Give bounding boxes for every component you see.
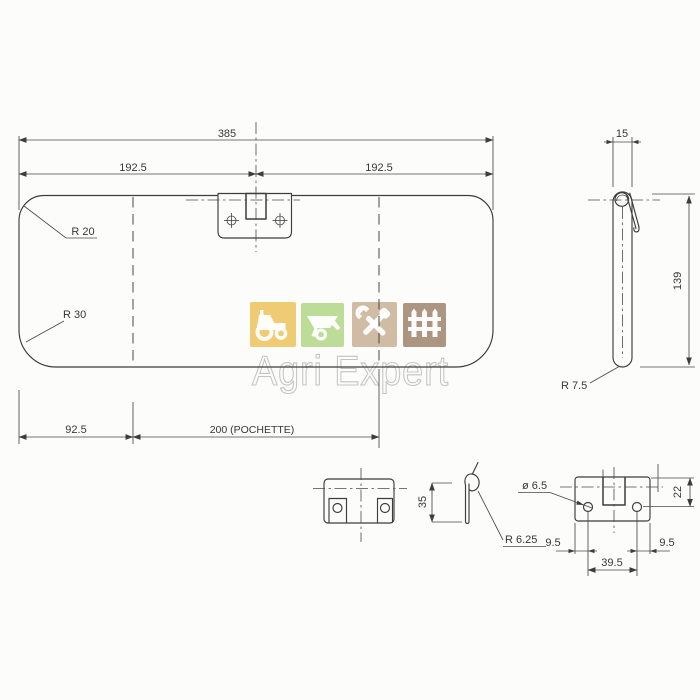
bracket-top-hole-left xyxy=(584,503,593,512)
bracket-top-hole-right xyxy=(633,503,642,512)
dim-edge-hole-left: 9.5 xyxy=(545,537,560,549)
dim-edge-hole-right: 9.5 xyxy=(659,537,674,549)
bracket-top-view: ø 6.5 22 9.5 9.5 39.5 xyxy=(518,464,694,576)
fence-icon xyxy=(408,309,441,338)
leader-hole-dia xyxy=(550,493,592,509)
brand-watermark-text: Agri Expert xyxy=(252,347,449,394)
dim-pocket-width: 200 (POCHETTE) xyxy=(210,424,295,436)
bracket-hole-left xyxy=(333,504,342,513)
clip-loop xyxy=(465,474,479,491)
panel-side-view: 15 139 R 7.5 xyxy=(561,128,695,392)
dim-clip-height: 35 xyxy=(417,496,429,508)
clip-tail xyxy=(473,463,479,474)
dim-side-height: 139 xyxy=(672,272,684,290)
leader-r6-25 xyxy=(478,491,503,540)
dim-overall-width: 385 xyxy=(218,128,236,140)
clip-body xyxy=(466,484,470,524)
leader-r30 xyxy=(26,321,64,342)
dim-half-right: 192.5 xyxy=(365,162,393,174)
dim-pocket-left: 92.5 xyxy=(65,424,86,436)
label-radius-side: R 7.5 xyxy=(561,380,587,392)
dim-half-left: 192.5 xyxy=(119,162,147,174)
technical-drawing-page: Agri Expert 385 xyxy=(0,0,700,700)
label-radius-bottom: R 30 xyxy=(63,309,86,321)
bracket-front-outline xyxy=(324,479,394,523)
panel-front-view: 385 192.5 192.5 92.5 200 (POCHETTE) R 20… xyxy=(19,122,493,448)
drawing-canvas: Agri Expert 385 xyxy=(0,0,700,700)
bracket-tab-left xyxy=(329,499,347,523)
bracket-top-outline xyxy=(575,477,650,521)
retaining-clip xyxy=(615,193,639,232)
bracket-hole-right xyxy=(381,504,390,513)
label-hole-dia: ø 6.5 xyxy=(522,480,547,492)
leader-r7-5 xyxy=(590,366,620,383)
bracket-tab-right xyxy=(378,499,393,523)
dim-thickness: 15 xyxy=(616,128,628,140)
dim-hole-depth: 22 xyxy=(672,486,684,498)
label-radius-top: R 20 xyxy=(71,226,94,238)
clip-profile-view: 35 R 6.25 xyxy=(417,463,546,547)
dim-hole-spacing: 39.5 xyxy=(601,557,622,569)
watermark: Agri Expert xyxy=(250,302,449,394)
bracket-front-view xyxy=(313,468,407,542)
label-clip-radius: R 6.25 xyxy=(505,534,537,546)
